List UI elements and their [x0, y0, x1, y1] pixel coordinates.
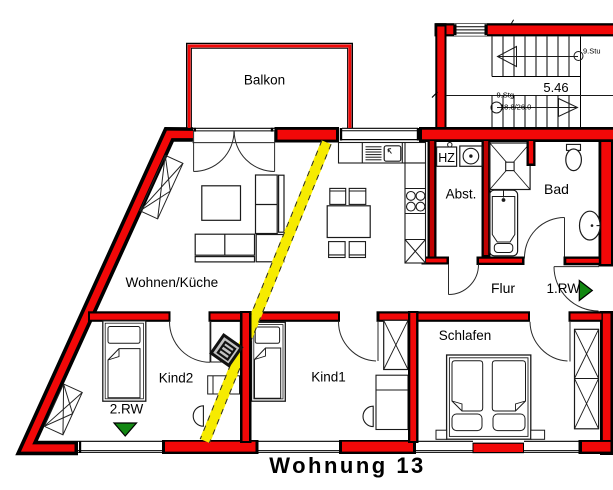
svg-text:Kind1: Kind1 — [311, 370, 346, 385]
svg-text:Kind2: Kind2 — [159, 371, 194, 386]
svg-text:Abst.: Abst. — [446, 187, 477, 202]
svg-text:Wohnung 13: Wohnung 13 — [269, 453, 426, 478]
svg-text:HZ: HZ — [438, 151, 455, 165]
svg-text:9.Stu: 9.Stu — [583, 47, 601, 56]
svg-text:Wohnen/Küche: Wohnen/Küche — [126, 275, 219, 290]
svg-text:9.Stg: 9.Stg — [497, 91, 515, 100]
svg-text:Bad: Bad — [544, 181, 569, 197]
svg-text:Flur: Flur — [491, 280, 515, 296]
svg-text:5.46: 5.46 — [543, 80, 568, 95]
svg-text:18.8/26.0: 18.8/26.0 — [500, 103, 531, 112]
svg-text:Schlafen: Schlafen — [439, 328, 492, 343]
svg-text:1.RW: 1.RW — [547, 281, 581, 296]
svg-text:Balkon: Balkon — [244, 73, 285, 88]
svg-text:2.RW: 2.RW — [110, 402, 144, 417]
